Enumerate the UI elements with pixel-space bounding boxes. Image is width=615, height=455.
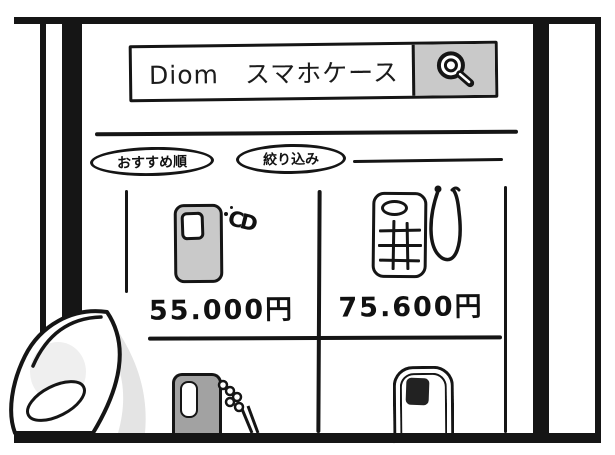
divider-right-of-pills xyxy=(353,158,503,163)
search-icon xyxy=(432,48,479,91)
grid-line-right xyxy=(504,186,507,433)
search-button[interactable] xyxy=(412,44,496,96)
filter-label: 絞り込み xyxy=(263,149,319,170)
sort-order-button[interactable]: おすすめ順 xyxy=(90,146,215,178)
product-2-price: 75.600円 xyxy=(318,284,504,325)
user-thumb xyxy=(0,300,160,443)
cd-charm-logo: CD xyxy=(225,206,257,236)
product-4-camera-cutout xyxy=(406,378,430,406)
product-1-camera-cutout xyxy=(181,212,205,241)
charm-dot xyxy=(224,212,228,216)
product-3-camera-cutout xyxy=(180,381,198,418)
strap-icon xyxy=(425,182,479,280)
product-2-camera-cutout xyxy=(381,200,408,216)
panel-border-bottom xyxy=(14,433,601,443)
search-bar: Diom スマホケース xyxy=(129,41,499,103)
search-input[interactable]: Diom スマホケース xyxy=(132,45,413,99)
filter-button[interactable]: 絞り込み xyxy=(236,143,346,175)
panel-border-right xyxy=(595,17,601,443)
phone-bezel-right xyxy=(533,22,549,433)
grid-line-row-divider xyxy=(148,335,502,340)
sort-order-label: おすすめ順 xyxy=(117,151,187,172)
panel-border-top xyxy=(14,17,601,24)
pattern-line xyxy=(378,244,422,247)
grid-line-left xyxy=(125,190,128,293)
chain-strap-icon xyxy=(214,378,269,436)
manga-panel-shopping-app: { "search_bar": { "query": "Diom スマホケース"… xyxy=(0,0,615,455)
divider-under-search xyxy=(95,130,518,137)
